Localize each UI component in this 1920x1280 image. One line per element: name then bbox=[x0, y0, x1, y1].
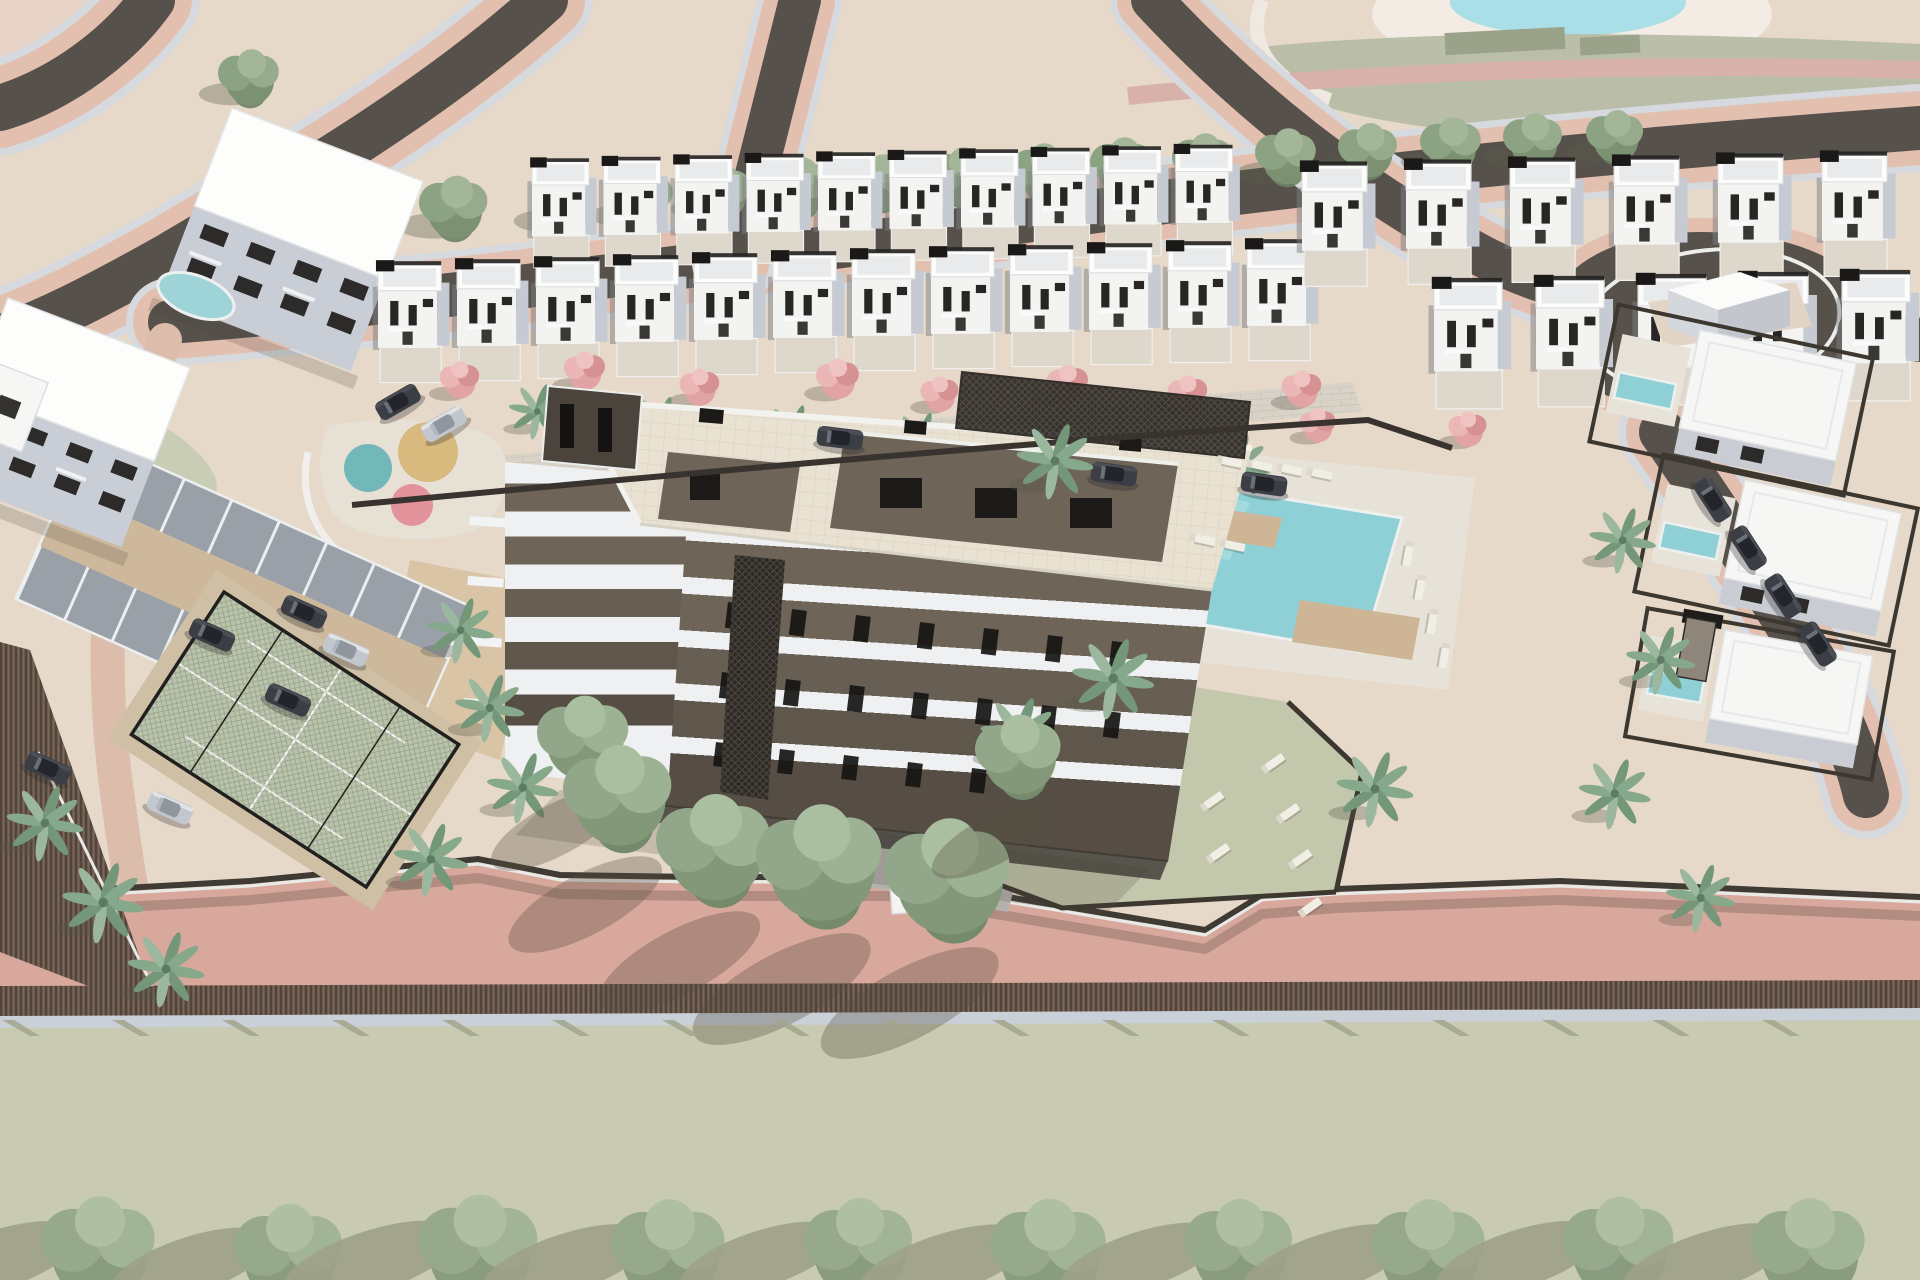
chimney bbox=[904, 420, 927, 435]
townhouse bbox=[1609, 154, 1688, 280]
townhouse bbox=[1817, 150, 1896, 276]
penthouse-window bbox=[880, 478, 922, 508]
townhouse bbox=[1099, 145, 1168, 255]
penthouse-window bbox=[975, 488, 1017, 518]
penthouse-window bbox=[1070, 498, 1112, 528]
stair-window bbox=[598, 408, 612, 452]
townhouse bbox=[1505, 156, 1584, 282]
townhouse bbox=[610, 254, 687, 376]
townhouse bbox=[742, 153, 811, 263]
townhouse bbox=[1713, 152, 1792, 278]
penthouse-window bbox=[690, 474, 720, 500]
townhouse bbox=[1171, 144, 1240, 254]
chimney bbox=[699, 408, 724, 424]
site-aerial-render bbox=[0, 0, 1920, 1280]
stair-core-panel bbox=[542, 386, 642, 470]
play-circle-teal bbox=[344, 444, 392, 492]
townhouse bbox=[956, 148, 1025, 258]
townhouse bbox=[847, 248, 924, 370]
townhouse bbox=[768, 250, 845, 372]
townhouse bbox=[813, 151, 882, 261]
townhouse bbox=[373, 260, 450, 382]
play-circle-pink bbox=[391, 484, 433, 526]
townhouse bbox=[599, 156, 668, 266]
stair-window bbox=[560, 404, 574, 448]
townhouse bbox=[926, 246, 1003, 368]
townhouse bbox=[689, 252, 766, 374]
townhouse bbox=[1028, 147, 1097, 257]
townhouse bbox=[527, 157, 596, 267]
townhouse bbox=[1163, 240, 1240, 362]
townhouse bbox=[1429, 277, 1512, 409]
townhouse bbox=[1297, 160, 1376, 286]
townhouse bbox=[1401, 158, 1480, 284]
render-stage bbox=[0, 0, 1920, 1280]
townhouse bbox=[670, 154, 739, 264]
golf-green-2 bbox=[1580, 34, 1641, 55]
townhouse bbox=[885, 150, 954, 260]
townhouse bbox=[1084, 242, 1161, 364]
townhouse bbox=[1005, 244, 1082, 366]
